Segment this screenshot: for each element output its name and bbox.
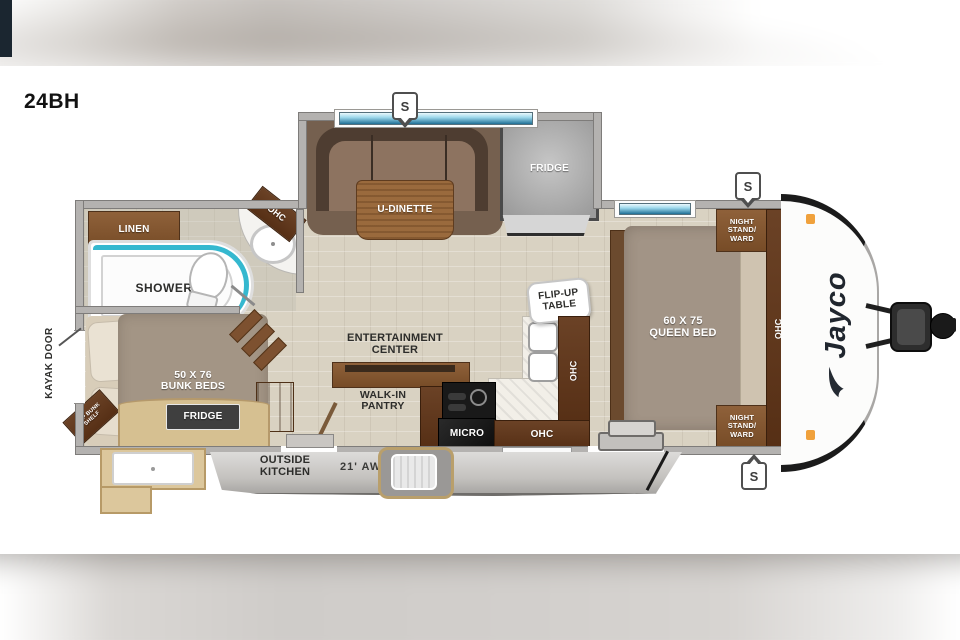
kitchen-ohc-side-label: OHC bbox=[569, 361, 579, 382]
floorplan-image: 24BH U-DINETTE FRIDGE LINEN SHOWER OHC 5… bbox=[0, 0, 960, 640]
outside-fridge-label: FRIDGE bbox=[184, 412, 223, 423]
outside-fridge: FRIDGE bbox=[166, 404, 240, 430]
wall-top-left bbox=[75, 200, 305, 209]
speaker-tag-front-bottom: S bbox=[741, 462, 767, 490]
fridge-counter bbox=[500, 215, 593, 236]
queen-bed-label: 60 X 75 QUEEN BED bbox=[649, 316, 716, 340]
hitch-coupler bbox=[946, 318, 956, 332]
outside-kitchen-label: OUTSIDE KITCHEN bbox=[222, 455, 348, 479]
nightstand-front-label: NIGHT STAND/ WARD bbox=[728, 218, 757, 242]
clearance-light-bottom bbox=[806, 430, 815, 440]
wall-bunk-divider bbox=[75, 306, 240, 314]
baggage-door-panel bbox=[391, 454, 437, 490]
wall-bath-divider bbox=[296, 209, 304, 293]
microwave-label: MICRO bbox=[450, 429, 484, 440]
dinette-label: U-DINETTE bbox=[377, 205, 432, 216]
stove-burner-ring bbox=[470, 389, 487, 406]
jayco-bird-icon bbox=[826, 365, 846, 399]
kitchen-counter-corner bbox=[488, 378, 560, 424]
pantry-label: WALK-IN PANTRY bbox=[340, 390, 426, 413]
entertainment-center-label: ENTERTAINMENT CENTER bbox=[322, 333, 468, 357]
outside-kitchen-cabinet-2 bbox=[100, 486, 152, 514]
flip-up-table-label: FLIP-UP TABLE bbox=[538, 288, 580, 314]
slideout-wall-left bbox=[298, 112, 307, 209]
dinette-post-left bbox=[371, 135, 373, 185]
bedroom-window bbox=[619, 203, 691, 215]
kayak-door-label: KAYAK DOOR bbox=[45, 321, 59, 405]
stove-burner-2 bbox=[448, 404, 466, 411]
speaker-tag-letter: S bbox=[401, 99, 410, 114]
model-title: 24BH bbox=[24, 90, 80, 114]
outside-sink-drain bbox=[151, 467, 155, 471]
fridge-label: FRIDGE bbox=[530, 164, 569, 175]
bath-sink-drain bbox=[271, 242, 275, 246]
outside-kitchen-sink bbox=[112, 452, 194, 485]
kitchen-ohc-side: OHC bbox=[558, 316, 590, 426]
speaker-tag-slideout: S bbox=[392, 92, 418, 120]
entry-step-upper bbox=[608, 420, 656, 437]
bottom-blur-band bbox=[0, 554, 960, 640]
jayco-logo: Jayco bbox=[814, 250, 858, 420]
speaker-tag-pointer-fill bbox=[749, 459, 759, 465]
dinette-post-right bbox=[445, 135, 447, 185]
kitchen-ohc-lower-label: OHC bbox=[531, 430, 554, 441]
kitchen-sink-bowl-2 bbox=[528, 352, 558, 382]
bunk-door-step bbox=[286, 434, 334, 448]
slideout-window bbox=[339, 112, 533, 125]
nightstand-rear-label: NIGHT STAND/ WARD bbox=[728, 414, 757, 438]
baggage-door bbox=[378, 447, 454, 499]
jayco-logo-text: Jayco bbox=[820, 271, 853, 358]
nightstand-front: NIGHT STAND/ WARD bbox=[716, 209, 768, 252]
dinette-table: U-DINETTE bbox=[356, 180, 454, 240]
tv-strip bbox=[345, 365, 455, 372]
bottom-blur-gradient bbox=[0, 554, 960, 640]
stove-burner-1 bbox=[448, 393, 466, 400]
slideout-wall-right bbox=[593, 112, 602, 209]
hitch-tongue-box-lid bbox=[897, 309, 925, 345]
speaker-tag-front-top: S bbox=[735, 172, 761, 200]
top-blur-gradient bbox=[0, 0, 960, 66]
hitch-tongue-box bbox=[890, 302, 932, 352]
speaker-tag-pointer-fill bbox=[743, 197, 753, 203]
clearance-light-top bbox=[806, 214, 815, 224]
top-blur-band bbox=[0, 0, 960, 66]
kitchen-sink-bowl-1 bbox=[528, 322, 558, 352]
speaker-tag-pointer-fill bbox=[400, 117, 410, 123]
bunk-label: 50 X 76 BUNK BEDS bbox=[161, 370, 225, 393]
linen-label: LINEN bbox=[119, 225, 150, 236]
top-left-dark-strip bbox=[0, 0, 12, 57]
fridge: FRIDGE bbox=[500, 117, 599, 221]
kayak-door-opening bbox=[74, 330, 85, 404]
speaker-tag-letter: S bbox=[750, 469, 759, 484]
stove bbox=[442, 382, 496, 420]
speaker-tag-letter: S bbox=[744, 179, 753, 194]
nightstand-rear: NIGHT STAND/ WARD bbox=[716, 405, 768, 448]
